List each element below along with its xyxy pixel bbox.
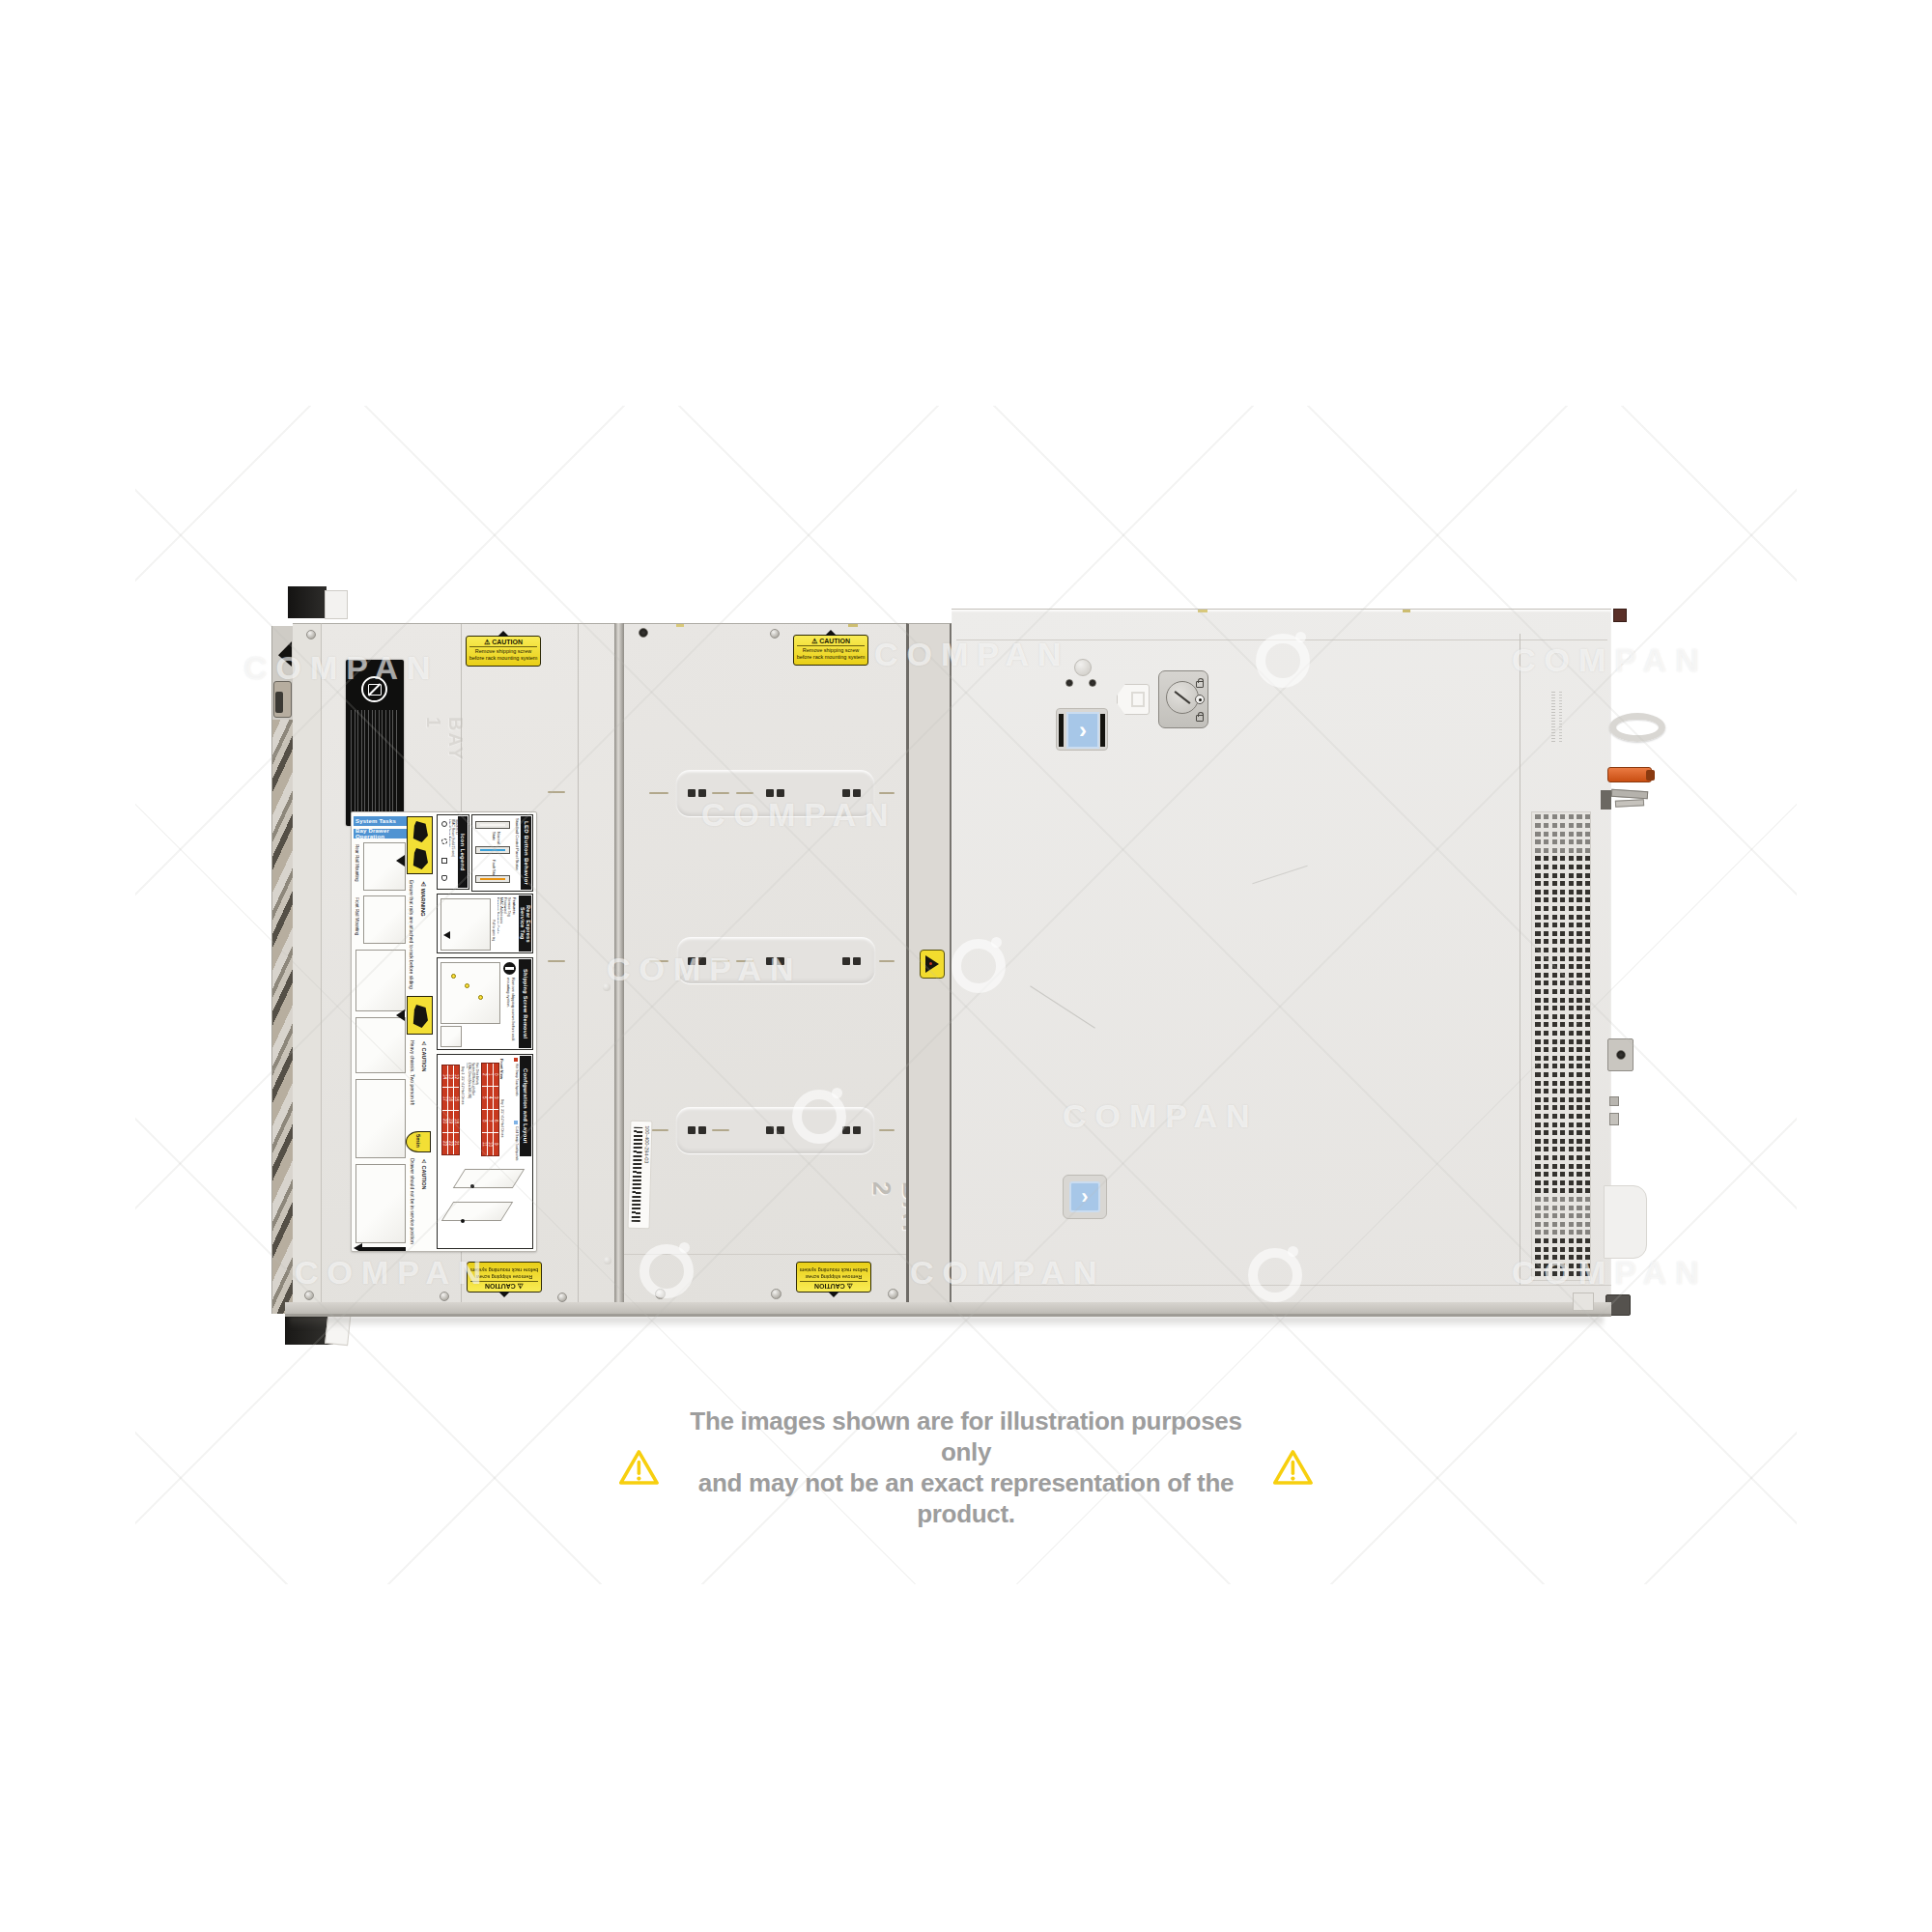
bottom-arrow-icon: [361, 1247, 406, 1251]
led-title: LED Button Behavior: [524, 821, 529, 885]
step-diagram-5: [355, 1079, 406, 1158]
caution-line2: before rack mounting system: [467, 655, 540, 662]
warning-triangle-sticker: [920, 950, 945, 979]
disclaimer-line2: and may not be an exact representation o…: [681, 1467, 1251, 1529]
shipping-text: Remove shipping screws before rack mount…: [502, 978, 516, 1047]
screw-dot: [465, 983, 469, 988]
left-panel-slot-dash-2: [548, 960, 565, 962]
slot-pair: [688, 957, 707, 965]
arrow-left-icon: [396, 855, 405, 867]
barcode-number: 100-400-294-03: [643, 1125, 650, 1163]
icon-legend-section: Icon Legend System ID BMC Reset (hold 15…: [437, 814, 469, 890]
caution-sticker-top-middle: ⚠ CAUTION Remove shipping screw before r…: [793, 635, 868, 666]
embossed-marks: [1559, 692, 1562, 742]
bmc-reset-icon: [441, 838, 447, 844]
drive-number-cell: 5: [482, 1087, 487, 1109]
screw-dot: [478, 995, 483, 1000]
step-diagram-2: [363, 895, 406, 944]
top-screw-hole: [639, 628, 648, 638]
icon-legend-header: Icon Legend: [458, 816, 468, 888]
icon-legend-items: System ID BMC Reset (hold 15 sec) Hard D…: [449, 819, 459, 887]
service-tag-header: Rear Express Service Tag: [519, 895, 531, 952]
panel-divider: [614, 623, 624, 1302]
drive-number-cell: 9: [494, 1133, 498, 1155]
caution-heavy-block: ⚠ CAUTION Heavy chassis. Two person lift…: [410, 1040, 433, 1125]
cold-swap-swatch: [514, 1121, 518, 1124]
caution-title: ⚠ CAUTION: [469, 637, 537, 647]
rear-tab: [1609, 1096, 1619, 1106]
hot-swap-swatch: [514, 1058, 518, 1062]
slot-dash: [879, 792, 895, 794]
step-diagram-6: [355, 1164, 406, 1243]
drive-number-cell: 8: [482, 1110, 487, 1132]
drive-number-cell: 1: [488, 1064, 493, 1086]
iso-top-tray: [453, 1169, 525, 1188]
tip-hazard-icon: [412, 1005, 428, 1028]
screw-slot-icon: [1175, 691, 1191, 704]
warning-body: Ensure that rails are attached to rack b…: [408, 880, 414, 990]
edge-notch: [1601, 790, 1611, 810]
bay-drawer-header: Bay Drawer Operation: [354, 829, 408, 838]
right-top-cover: [952, 609, 1611, 1302]
button-frame-bar: [1059, 714, 1064, 747]
service-note: Pull to open tag: [492, 920, 496, 951]
front-view-label: Front View: [499, 1059, 504, 1097]
caution-pointer-icon: [497, 631, 509, 637]
drive-number-cell: 20: [442, 1111, 447, 1132]
caution-line1: Remove shipping screw: [794, 647, 867, 654]
configuration-header: Configuration and Layout: [520, 1056, 531, 1156]
lock-screw-circle: [1166, 681, 1199, 714]
caution-title: ⚠ CAUTION: [470, 1281, 538, 1292]
no-stacking-icon: [361, 676, 387, 702]
iso-diagram: [441, 1163, 528, 1244]
system-id-icon: [441, 821, 447, 827]
bezel-latch-pattern: [272, 720, 294, 1314]
button-frame-bar: [1100, 714, 1105, 747]
residue-mark: [676, 624, 684, 627]
flange-screw-top: [306, 630, 316, 639]
system-tasks-header: System Tasks: [354, 816, 408, 826]
slot-pair: [766, 789, 785, 797]
drawer-release-button-bottom[interactable]: ›: [1063, 1175, 1107, 1219]
led-subtitle: Standard Control Panel Status: [515, 818, 520, 890]
bay1-drive-grid: 21054387611109: [481, 1063, 499, 1156]
instruction-label: System Tasks Bay Drawer Operation Rear R…: [351, 811, 537, 1252]
bottom-screw: [888, 1289, 898, 1299]
step-diagram-1: [363, 842, 406, 891]
configuration-section: Configuration and Layout Hot Swap Touchp…: [437, 1054, 533, 1249]
rear-tab: [1609, 1113, 1619, 1125]
slot-pair: [842, 1126, 862, 1134]
drive-number-cell: 13: [448, 1065, 453, 1087]
slot-dash: [649, 792, 668, 794]
embossed-marks: [1551, 692, 1555, 742]
shipping-subdiagram: [440, 1026, 462, 1047]
led-stripe-blue: [480, 849, 505, 851]
caution-heavy-text: Heavy chassis. Two person lift required.: [410, 1040, 415, 1125]
caution-title: ⚠ CAUTION: [797, 636, 865, 646]
iso-dot: [461, 1219, 465, 1223]
five-min-icon: 5min: [406, 1131, 431, 1152]
slot-dash: [736, 960, 753, 962]
tip-hazard-icon: [412, 821, 428, 842]
service-tag-section: Rear Express Service Tag Features: Servi…: [437, 894, 533, 953]
rear-rail-label: Rear Rail Mounting: [355, 844, 359, 891]
hdd-activity-icon: [441, 858, 447, 864]
drive-number-cell: 3: [494, 1087, 498, 1109]
bottom-edge-detail: [1573, 1293, 1594, 1311]
caution-sticker-top-left: ⚠ CAUTION Remove shipping screw before r…: [466, 636, 541, 667]
vent-shade-top: [1532, 812, 1590, 853]
drive-number-cell: 21: [454, 1133, 459, 1154]
system-tasks-text: System Tasks: [355, 818, 396, 824]
cover-hole-left: [1065, 679, 1073, 687]
caution-title: ⚠ CAUTION: [800, 1281, 867, 1292]
drive-number-cell: 7: [488, 1110, 493, 1132]
caution-line2: before rack mounting system: [797, 1267, 870, 1274]
rear-ring-handle[interactable]: [1609, 713, 1665, 742]
product-photo: BAY 1 BAY 2: [0, 0, 1932, 1932]
service-tag-title: Rear Express Service Tag: [520, 895, 531, 952]
shipping-diagram: [440, 962, 500, 1024]
bottom-screw: [557, 1293, 567, 1302]
drive-number-cell: 22: [448, 1133, 453, 1154]
bay2-grid-label: Bay 2: 3.5" x12 Hard Drives: [461, 1066, 465, 1153]
front-bezel-latch-strip: [271, 626, 293, 1314]
slot-pair: [842, 957, 862, 965]
warning-triangle-icon: [1272, 1446, 1314, 1489]
caution-pointer-icon: [828, 1292, 839, 1297]
front-rail-label: Front Rail Mounting: [355, 897, 359, 944]
led-behavior-header: LED Button Behavior: [521, 816, 531, 890]
warning-dot: [929, 962, 932, 965]
slot-dash: [736, 792, 753, 794]
vent-shade-mid: [1532, 1196, 1590, 1235]
stop-band: [505, 967, 514, 970]
barcode-icon: [632, 1127, 643, 1222]
lock-icon: [1196, 715, 1204, 722]
side-flange-tab: [1604, 1185, 1647, 1259]
front-flange: [293, 623, 322, 1309]
drawer-release-button-top[interactable]: ›: [1056, 708, 1108, 751]
warning-text-block: ⚠ WARNING Ensure that rails are attached…: [408, 880, 433, 990]
led-stripe-orange: [480, 878, 505, 880]
caution-line2: before rack mounting system: [468, 1267, 541, 1274]
right-cover-seam-top: [956, 639, 1607, 640]
shipping-screw-header: Shipping Screw Removal: [519, 959, 531, 1048]
disclaimer: The images shown are for illustration pu…: [618, 1406, 1314, 1529]
rack-ear-top-left: [288, 586, 327, 618]
caution-drawer-block: ⚠ CAUTION Drawer should not be in servic…: [410, 1158, 433, 1249]
bay2-drive-grid: 141312171615201918232221: [441, 1065, 460, 1155]
slot-dash: [879, 960, 895, 962]
middle-panel-bottom-seam: [624, 1254, 906, 1255]
hot-swap-label: Hot Swap Touchpoints: [515, 1064, 519, 1118]
warning-triangle-icon: [618, 1446, 660, 1489]
rear-clip: [1615, 799, 1644, 808]
rear-clip: [1611, 789, 1648, 800]
left-panel-seam-2: [578, 624, 579, 1302]
drive-number-cell: 19: [448, 1111, 453, 1132]
slot-dash: [712, 960, 729, 962]
bottom-arrowhead-icon: [354, 1243, 362, 1252]
config-sublabels: Hard Drive Activity System ID/Status Lig…: [467, 1063, 479, 1155]
cover-hole-right: [1089, 679, 1096, 687]
iso-bottom-tray: [441, 1202, 513, 1221]
slot-dash: [649, 960, 668, 962]
caution-sticker-bottom-left: ⚠ CAUTION Remove shipping screw before r…: [467, 1262, 542, 1293]
residue-mark: [848, 624, 858, 627]
arrow-left-icon: [396, 1009, 405, 1021]
slot-dash: [879, 1129, 895, 1131]
caution-line1: Remove shipping screw: [467, 648, 540, 655]
service-features-heading: Features:: [512, 897, 517, 952]
tip-hazard-warning-box-2: [407, 996, 433, 1035]
drive-number-cell: 12: [454, 1065, 459, 1087]
drive-number-cell: 11: [482, 1133, 487, 1155]
slot-dash: [712, 792, 729, 794]
regulatory-fine-print: [351, 710, 399, 818]
stop-icon: [503, 962, 516, 975]
bottom-screw: [771, 1289, 781, 1299]
drive-number-cell: 16: [448, 1088, 453, 1109]
caution-sticker-bottom-middle: ⚠ CAUTION Remove shipping screw before r…: [796, 1262, 871, 1293]
chassis-shadow: [290, 1317, 1604, 1328]
plate-hole: [1616, 1050, 1626, 1060]
led-stripe: [480, 824, 505, 826]
icon-legend-title: Icon Legend: [460, 834, 466, 871]
residue-mark: [1403, 610, 1410, 612]
led-bar-blank: [475, 821, 510, 829]
bay1-grid-label: Bay 1: 3.5" x12 Hard Drives: [500, 1099, 504, 1157]
caution-heavy-title: ⚠ CAUTION: [421, 1040, 427, 1125]
rear-screw-plate: [1607, 1038, 1634, 1071]
drive-number-cell: 15: [454, 1088, 459, 1109]
panel-dimple: [604, 1257, 611, 1264]
drive-number-cell: 0: [494, 1064, 498, 1086]
caution-pointer-icon: [498, 1292, 510, 1297]
shipping-title: Shipping Screw Removal: [523, 969, 528, 1038]
slot-pair: [688, 1126, 707, 1134]
barcode-sticker: 100-400-294-03: [628, 1121, 653, 1230]
shipping-screw-section: Shipping Screw Removal Remove shipping s…: [437, 957, 533, 1050]
slot-dash: [712, 1129, 729, 1131]
five-min-text: 5min: [415, 1134, 421, 1151]
caution-line2: before rack mounting system: [794, 654, 867, 661]
slot-pair: [842, 789, 862, 797]
rear-bracket-top: [1613, 609, 1627, 622]
caution-line1: Remove shipping screw: [468, 1274, 541, 1281]
service-features-list: Service Tag Password MAC Addresses Expre…: [497, 897, 511, 952]
bezel-knob-grip: [275, 692, 283, 713]
cover-dimple-large: [1074, 659, 1092, 676]
service-tag-diagram: [440, 898, 491, 951]
unlock-icon: [1196, 681, 1204, 688]
chevron-right-icon: ›: [1066, 712, 1099, 749]
lock-position-dot: [1195, 695, 1205, 704]
regulatory-label: [346, 660, 404, 826]
residue-mark: [1198, 610, 1207, 612]
drive-number-cell: 18: [454, 1111, 459, 1132]
chevron-right-icon: ›: [1069, 1181, 1100, 1212]
flange-screw-bottom: [304, 1291, 314, 1300]
caution-pointer-icon: [825, 630, 837, 636]
warning-triangle-icon: [925, 955, 939, 973]
vent-panel-seam: [1520, 634, 1520, 1285]
bottom-screw: [655, 1289, 666, 1299]
screw-dot: [451, 974, 456, 979]
slot-pair: [766, 1126, 785, 1134]
bay1-embossed-text: BAY 1: [422, 717, 467, 775]
rail-step-top-left: [325, 590, 348, 619]
drive-number-cell: 2: [482, 1064, 487, 1086]
step-diagram-4: [355, 1017, 406, 1073]
drive-number-cell: 23: [442, 1133, 447, 1154]
left-panel-slot-dash-1: [548, 791, 565, 793]
disclaimer-text: The images shown are for illustration pu…: [681, 1406, 1251, 1529]
configuration-title: Configuration and Layout: [523, 1068, 528, 1144]
drive-number-cell: 14: [442, 1065, 447, 1087]
tip-hazard-icon: [412, 848, 428, 869]
drive-number-cell: 6: [494, 1110, 498, 1132]
slot-pair: [766, 957, 785, 965]
led-behavior-section: LED Button Behavior Standard Control Pan…: [471, 814, 533, 892]
led-bar-normal: [475, 846, 510, 854]
caution-line1: Remove shipping screw: [797, 1274, 870, 1281]
bay-drawer-text: Bay Drawer Operation: [355, 828, 408, 839]
step-diagram-3: [355, 950, 406, 1011]
latch-inner-outline: [1131, 692, 1145, 707]
slot-pair: [688, 789, 707, 797]
caution-drawer-title: ⚠ CAUTION: [421, 1158, 427, 1249]
caution-drawer-text: Drawer should not be in service position…: [410, 1158, 415, 1249]
top-screw: [770, 629, 780, 639]
usb-icon: [441, 875, 447, 881]
disclaimer-line1: The images shown are for illustration pu…: [681, 1406, 1251, 1467]
panel-dimple: [603, 983, 611, 991]
rear-latch-tip: [1646, 770, 1655, 781]
drive-number-cell: 4: [488, 1087, 493, 1109]
cover-lock-fixture[interactable]: [1158, 670, 1208, 728]
drive-number-cell: 17: [442, 1088, 447, 1109]
right-cover-seam-bottom: [952, 1285, 1611, 1286]
drive-number-cell: 10: [488, 1133, 493, 1155]
warning-title: ⚠ WARNING: [420, 880, 427, 990]
tip-hazard-warning-box: [407, 816, 433, 874]
arrow-left-icon: [443, 931, 450, 939]
bottom-screw: [440, 1292, 449, 1301]
iso-dot: [470, 1184, 474, 1188]
led-bar-fault: [475, 875, 510, 883]
